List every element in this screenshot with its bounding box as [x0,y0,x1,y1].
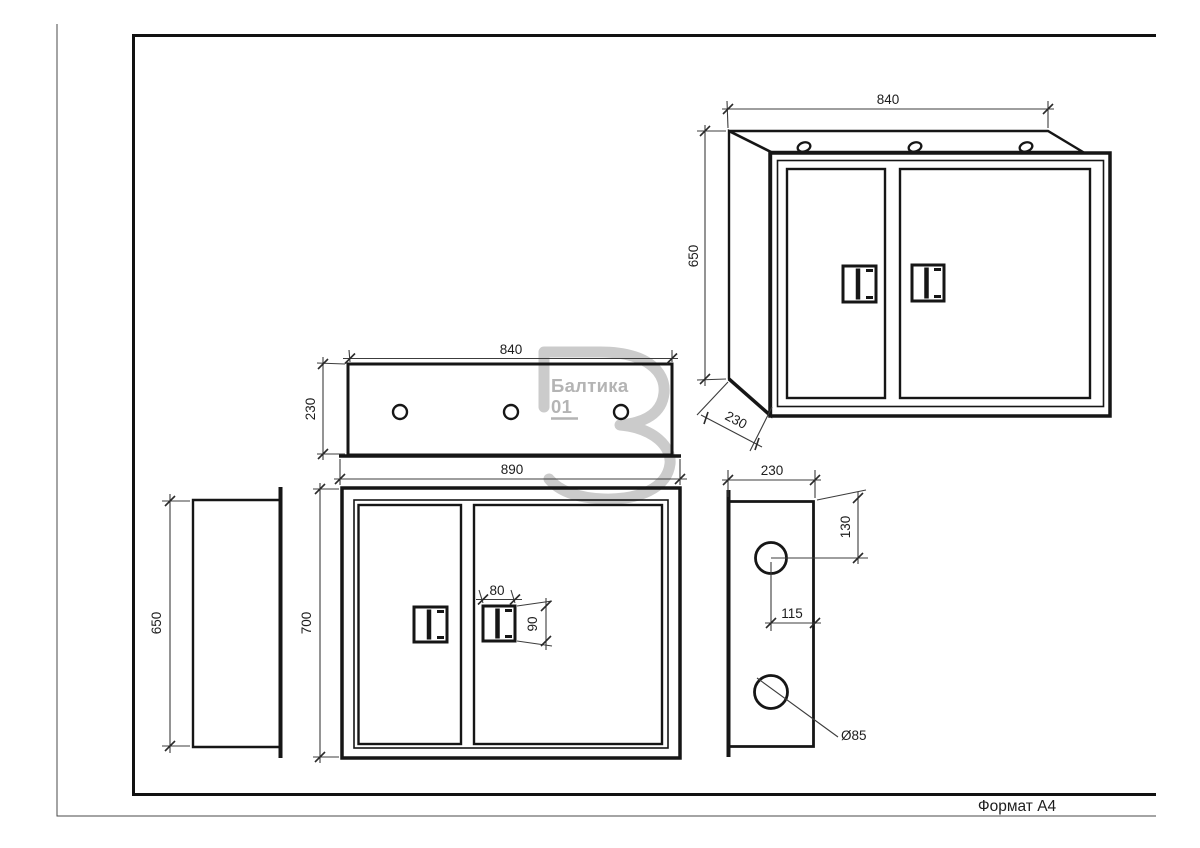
dim-top-width: 840 [500,342,523,357]
watermark-brand: Балтика [551,375,629,396]
dim-handle-height: 90 [525,616,540,631]
watermark-number: 01 [551,396,572,417]
dim-panel-height: 650 [149,612,164,635]
door-handle [843,266,876,302]
dim-side-hole-top-offset: 130 [838,516,853,539]
dim-side-depth: 230 [761,463,784,478]
dim-side-hole-diameter: Ø85 [841,728,867,743]
dim-top-depth: 230 [303,398,318,421]
door-handle [912,265,944,301]
dim-side-hole-center-offset: 115 [781,606,803,621]
door-handle [483,606,515,641]
door-handle [414,607,447,642]
dim-handle-width: 80 [489,583,504,598]
dim-persp-width: 840 [877,92,900,107]
dim-front-width: 890 [501,462,524,477]
sheet-format-label: Формат A4 [978,798,1057,815]
technical-drawing-canvas: Балтика 01 Формат A4 [0,0,1200,848]
sheet-background [0,0,1200,848]
dim-front-height: 700 [299,612,314,635]
dim-persp-height: 650 [686,245,701,268]
